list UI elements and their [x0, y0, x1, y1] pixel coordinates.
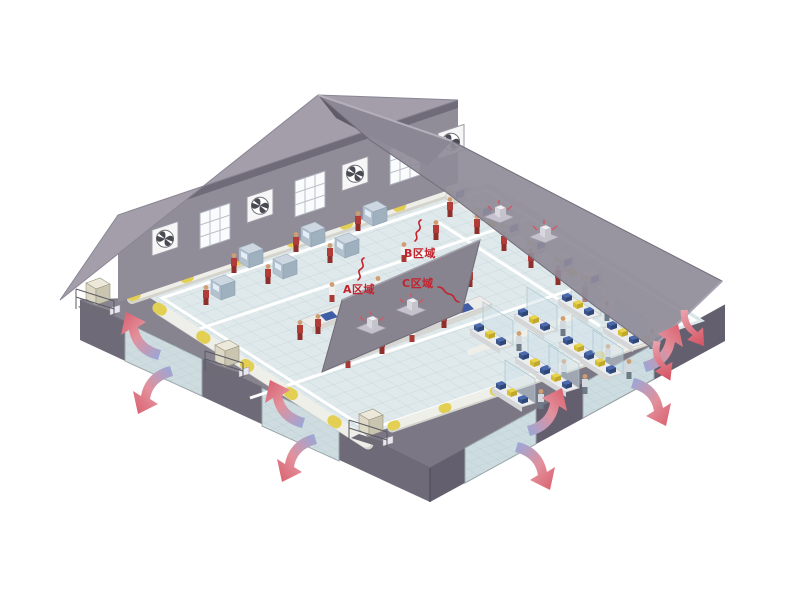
area-b-label: B区域	[404, 246, 436, 260]
factory-ventilation-illustration: A区域 B区域 C区域	[0, 0, 800, 600]
area-a-label: A区域	[343, 282, 375, 296]
airflow-in-arrow-icon	[515, 442, 555, 490]
airflow-in-arrow-icon	[631, 378, 671, 426]
isometric-scene: A区域 B区域 C区域	[0, 0, 800, 600]
area-c-label: C区域	[402, 276, 434, 290]
